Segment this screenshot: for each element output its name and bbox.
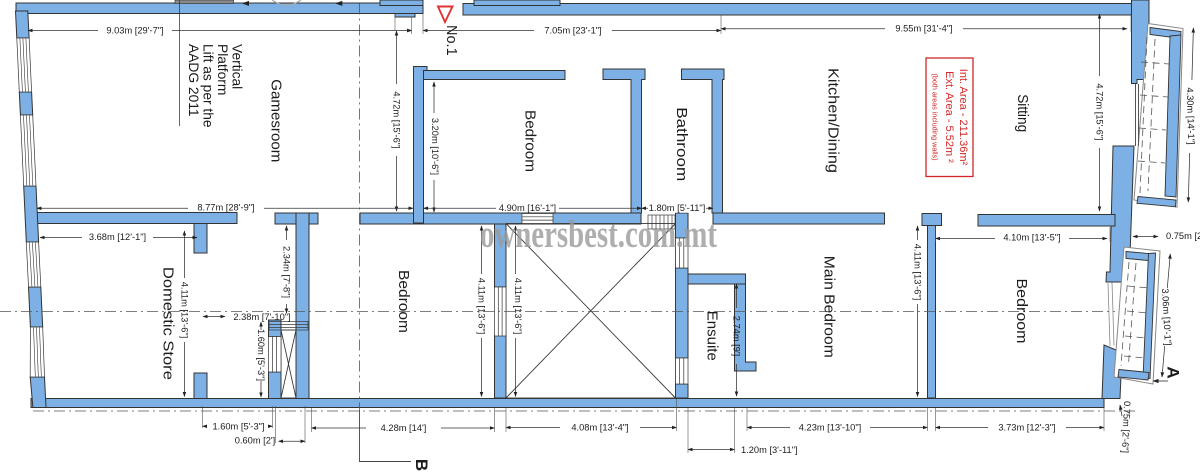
svg-text:0.60m [2']: 0.60m [2'] (235, 435, 276, 445)
svg-text:B: B (412, 459, 431, 471)
svg-text:3.20m [10'-6"]: 3.20m [10'-6"] (430, 118, 440, 175)
svg-text:Sitting: Sitting (1014, 94, 1031, 132)
svg-text:4.72m [15'-6"]: 4.72m [15'-6"] (392, 91, 402, 148)
svg-text:Bathroom: Bathroom (673, 107, 690, 181)
svg-text:1.60m [5'-3"]: 1.60m [5'-3"] (212, 421, 264, 431)
svg-text:3.06m [10'-1"]: 3.06m [10'-1"] (1160, 288, 1173, 346)
svg-text:4.28m [14']: 4.28m [14'] (381, 423, 427, 433)
svg-text:Lift as per the: Lift as per the (201, 44, 216, 128)
svg-text:AADG 2011: AADG 2011 (186, 44, 201, 117)
svg-text:Bedroom: Bedroom (395, 270, 412, 333)
svg-text:Kitchen/Dining: Kitchen/Dining (825, 68, 842, 173)
svg-text:Bedroom: Bedroom (522, 110, 539, 172)
svg-text:1.80m [5'-11"]: 1.80m [5'-11"] (649, 203, 706, 213)
svg-text:1.60m [5'-3"]: 1.60m [5'-3"] (256, 329, 266, 381)
svg-text:ownersbest.com.mt: ownersbest.com.mt (480, 213, 717, 256)
svg-text:8.77m [28'-9"]: 8.77m [28'-9"] (197, 203, 254, 213)
svg-text:Int. Area - 211.36m²: Int. Area - 211.36m² (957, 69, 969, 166)
svg-text:2.38m [7'-10"]: 2.38m [7'-10"] (233, 312, 290, 322)
svg-text:4.11m [13'-6"]: 4.11m [13'-6"] (513, 278, 523, 335)
svg-text:4.11m [13'-6"]: 4.11m [13'-6"] (913, 244, 923, 301)
svg-text:Ensuite: Ensuite (704, 311, 721, 361)
svg-text:Domestic Store: Domestic Store (160, 267, 177, 380)
svg-text:Ext. Area - 5.52m ²: Ext. Area - 5.52m ² (943, 71, 955, 163)
svg-text:2.74m [9']: 2.74m [9'] (732, 316, 742, 357)
svg-text:4.72m [15'-6"]: 4.72m [15'-6"] (1095, 83, 1105, 140)
svg-text:2.34m [7'-8"]: 2.34m [7'-8"] (282, 246, 292, 298)
svg-text:3.73m [12'-3"]: 3.73m [12'-3"] (998, 423, 1055, 433)
svg-text:0.75m [2'-6"]: 0.75m [2'-6"] (1120, 401, 1132, 453)
svg-text:Bedroom: Bedroom (1013, 279, 1030, 344)
svg-text:Main Bedroom: Main Bedroom (821, 256, 838, 358)
svg-text:Platform: Platform (215, 44, 230, 95)
svg-text:4.90m [16'-1"]: 4.90m [16'-1"] (499, 203, 556, 213)
svg-text:4.11m [13'-6"]: 4.11m [13'-6"] (477, 278, 487, 335)
svg-text:4.08m [13'-4"]: 4.08m [13'-4"] (571, 423, 628, 433)
svg-text:No.1: No.1 (443, 25, 459, 56)
svg-text:7.05m [23'-1"]: 7.05m [23'-1"] (544, 26, 601, 36)
svg-text:9.03m [29'-7"]: 9.03m [29'-7"] (106, 26, 163, 36)
svg-text:1.20m [3'-11"]: 1.20m [3'-11"] (741, 445, 798, 455)
svg-text:3.68m [12'-1"]: 3.68m [12'-1"] (89, 232, 146, 242)
svg-text:4.11m [13'-6"]: 4.11m [13'-6"] (179, 282, 189, 339)
svg-text:4.23m [13'-10"]: 4.23m [13'-10"] (799, 423, 861, 433)
svg-text:(both areas including walls): (both areas including walls) (931, 73, 940, 160)
svg-text:Vertical: Vertical (230, 44, 245, 89)
svg-text:A: A (1164, 366, 1183, 378)
svg-text:4.10m [13'-5"]: 4.10m [13'-5"] (1003, 233, 1060, 243)
svg-text:9.55m [31'-4"]: 9.55m [31'-4"] (895, 24, 952, 34)
svg-text:4.30m [14'-1"]: 4.30m [14'-1"] (1185, 87, 1196, 145)
svg-text:0.75m [2'-6"]: 0.75m [2'-6"] (1166, 231, 1200, 241)
svg-text:Gamesroom: Gamesroom (267, 79, 284, 162)
